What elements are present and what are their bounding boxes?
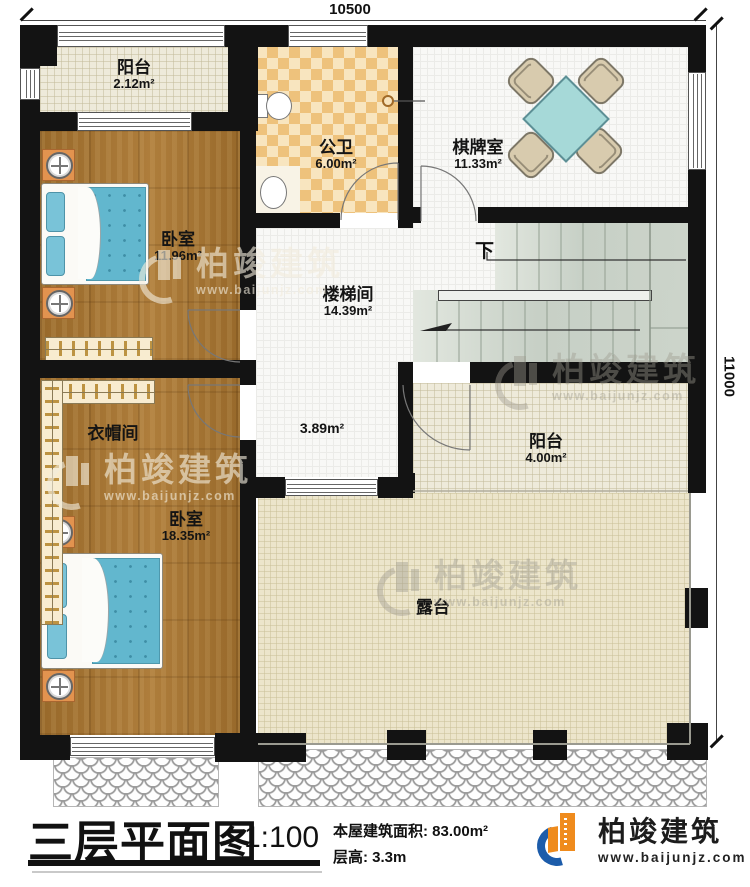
toilet-bowl-icon [266, 92, 292, 120]
bedroom2-nightstand [42, 670, 75, 702]
stairs-down-label: 下 [475, 236, 494, 263]
wall [413, 207, 421, 223]
room-label-stairwell: 楼梯间 14.39m² [323, 285, 374, 319]
stairs-upper-flight [495, 223, 688, 290]
window [70, 737, 215, 756]
right-dimension-line [716, 25, 717, 743]
terrace-pillar [667, 723, 708, 760]
window [688, 72, 706, 170]
terrace-pillar [533, 730, 567, 760]
wall [20, 25, 40, 747]
stairwell-hall-floor [256, 228, 413, 477]
wall [192, 112, 256, 131]
window [57, 25, 225, 47]
building-area-label: 本屋建筑面积: 83.00m² [333, 819, 488, 845]
room-label-bedroom2: 卧室 18.35m² [162, 510, 210, 544]
stairs-handrail [438, 290, 652, 301]
wall [20, 735, 70, 760]
terrace-floor [258, 493, 690, 745]
lamp-icon [46, 673, 73, 700]
wall [368, 25, 706, 47]
company-name: 柏竣建筑 [598, 817, 747, 848]
room-label-chess-room: 棋牌室 11.33m² [453, 138, 504, 172]
window [20, 68, 40, 100]
room-label-bathroom: 公卫 6.00m² [315, 138, 356, 172]
bedroom1-wardrobe [45, 337, 153, 361]
bedroom1-nightstand [42, 149, 75, 181]
window [288, 25, 368, 47]
cloakroom-wardrobe-left [41, 380, 63, 625]
company-logo-icon [536, 810, 590, 872]
floor-height-label: 层高: 3.3m [333, 845, 488, 871]
wall [398, 47, 413, 228]
wall [20, 360, 256, 378]
bedroom1-bed [41, 183, 149, 285]
wall [40, 112, 77, 131]
hall-area-label: 3.89m² [300, 421, 344, 437]
title-underline-2 [32, 871, 322, 873]
plan-scale: 1:100 [244, 821, 319, 855]
room-label-cloakroom: 衣帽间 [88, 424, 139, 443]
company-url: www.baijunjz.com [598, 850, 747, 865]
room-label-balcony1: 阳台 2.12m² [113, 58, 154, 92]
terrace-pillar [685, 588, 708, 628]
balcony-glazing [77, 112, 192, 131]
floor-plan: 阳台 2.12m² 公卫 6.00m² 棋牌室 11.33m² 卧室 11.96… [0, 0, 750, 887]
lamp-icon [46, 152, 73, 179]
cloakroom-wardrobe-top [55, 380, 155, 404]
terrace-pillar [387, 730, 426, 760]
roof-tiles-right [258, 749, 707, 807]
bedroom1-pillow [46, 236, 65, 276]
bedroom1-nightstand [42, 287, 75, 319]
room-label-terrace: 露台 [416, 598, 450, 617]
bedroom1-pillow [46, 192, 65, 232]
title-underline [28, 860, 320, 866]
wall [478, 207, 706, 223]
window [285, 479, 378, 496]
top-dimension-line [22, 20, 706, 21]
right-dimension-label: 11000 [721, 349, 738, 405]
roof-tiles-left [53, 757, 219, 807]
wall [215, 733, 306, 762]
room-label-balcony2: 阳台 4.00m² [525, 432, 566, 466]
lamp-icon [46, 290, 73, 317]
wall [398, 473, 415, 493]
plan-info: 本屋建筑面积: 83.00m² 层高: 3.3m [333, 819, 488, 871]
sink-icon [260, 176, 287, 209]
company-logo: 柏竣建筑 www.baijunjz.com [536, 810, 747, 872]
room-label-bedroom1: 卧室 11.96m² [154, 230, 202, 264]
wall [250, 477, 285, 498]
top-dimension-label: 10500 [310, 1, 390, 18]
wall [470, 362, 706, 383]
wall [240, 213, 340, 228]
